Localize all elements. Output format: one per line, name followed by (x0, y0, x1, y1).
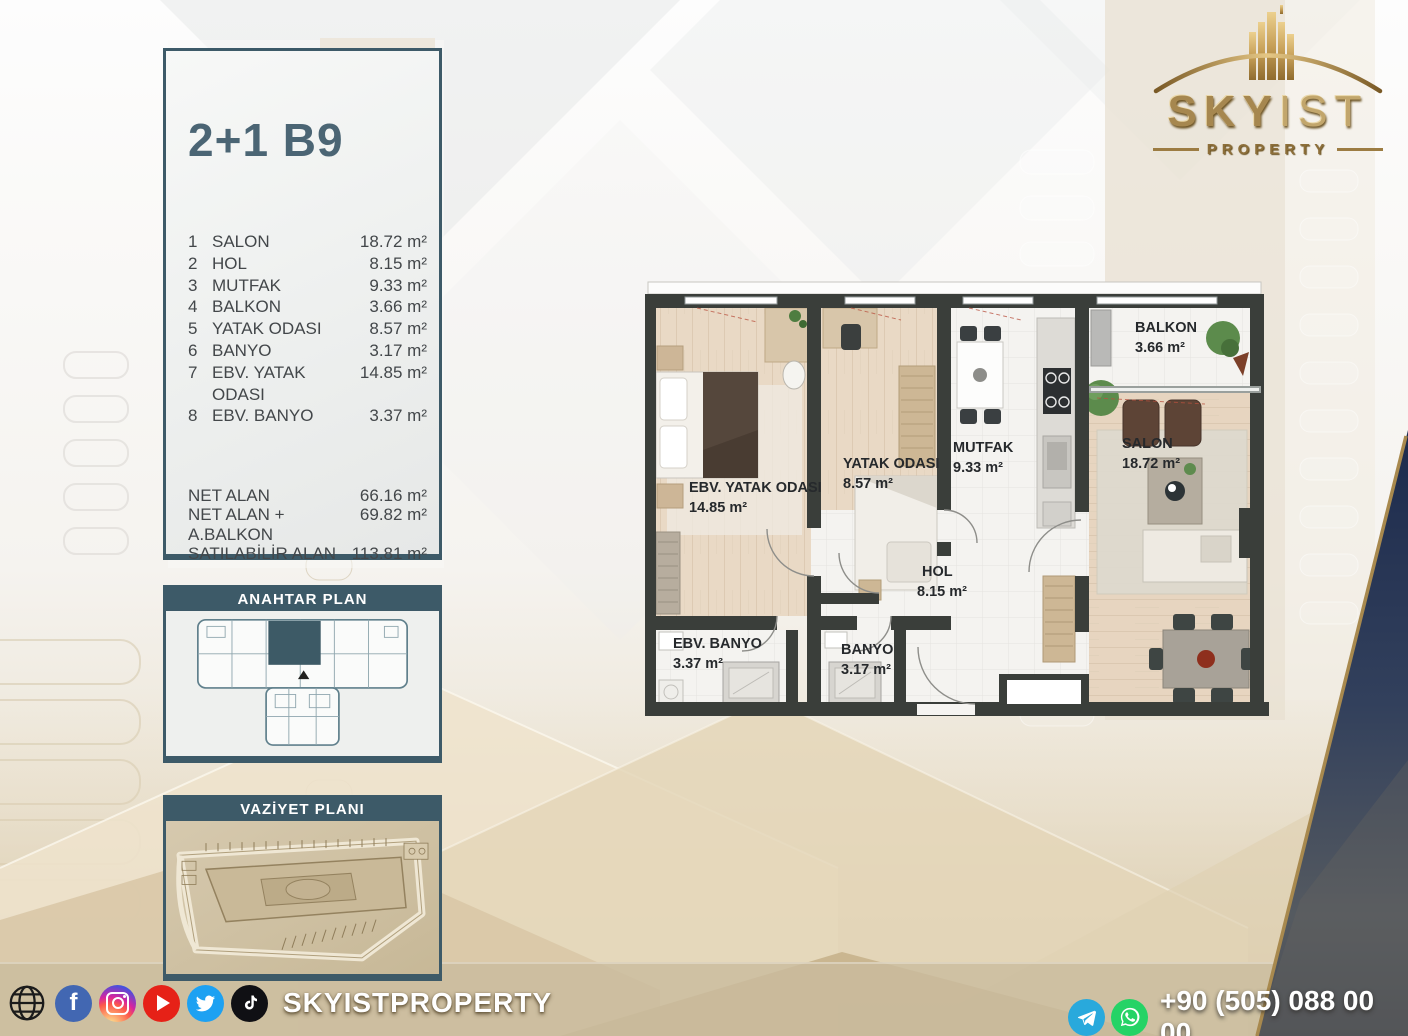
brand-bold: SKY (1168, 87, 1279, 136)
total-row: NET ALAN 66.16 m² (188, 486, 427, 505)
room-name: BALKON (212, 296, 369, 318)
room-row: 1 SALON 18.72 m² (188, 231, 427, 253)
facebook-icon[interactable]: f (55, 985, 92, 1022)
telegram-icon[interactable] (1068, 999, 1105, 1036)
room-number: 8 (188, 405, 201, 427)
room-row: 7 EBV. YATAK ODASI 14.85 m² (188, 362, 427, 406)
total-value: 66.16 m² (360, 486, 427, 505)
plan-area-salon: 18.72 m² (1122, 456, 1180, 472)
plan-label-balkon: BALKON (1135, 320, 1197, 336)
whatsapp-icon[interactable] (1111, 999, 1148, 1036)
total-name: SATILABİLİR ALAN (188, 544, 352, 563)
room-row: 6 BANYO 3.17 m² (188, 340, 427, 362)
skyline-icon (1128, 4, 1408, 94)
plan-area-ebv-banyo: 3.37 m² (673, 656, 723, 672)
total-name: NET ALAN (188, 486, 360, 505)
room-number: 1 (188, 231, 201, 253)
room-row: 8 EBV. BANYO 3.37 m² (188, 405, 427, 427)
key-plan-panel: ANAHTAR PLAN (163, 585, 442, 763)
room-row: 4 BALKON 3.66 m² (188, 296, 427, 318)
room-name: EBV. BANYO (212, 405, 369, 427)
plan-label-ebv-banyo: EBV. BANYO (673, 636, 762, 652)
plan-area-balkon: 3.66 m² (1135, 340, 1185, 356)
room-name: HOL (212, 253, 369, 275)
room-name: BANYO (212, 340, 369, 362)
right-dash (1337, 148, 1383, 152)
phone-number[interactable]: +90 (505) 088 00 00 (1160, 985, 1408, 1036)
brand-light: IST (1279, 87, 1368, 136)
room-area: 9.33 m² (369, 275, 427, 297)
tiktok-icon[interactable] (231, 985, 268, 1022)
room-name: YATAK ODASI (212, 318, 369, 340)
instagram-icon[interactable] (99, 985, 136, 1022)
room-row: 2 HOL 8.15 m² (188, 253, 427, 275)
floor-plan: EBV. YATAK ODASI 14.85 m² YATAK ODASI 8.… (645, 280, 1275, 726)
area-totals: NET ALAN 66.16 m² NET ALAN + A.BALKON 69… (188, 486, 427, 564)
plan-area-banyo: 3.17 m² (841, 662, 891, 678)
room-name: EBV. YATAK ODASI (212, 362, 360, 406)
site-plan-panel: VAZİYET PLANI (163, 795, 442, 981)
room-area: 3.17 m² (369, 340, 427, 362)
unit-info-card: 2+1 B9 1 SALON 18.72 m² 2 HOL 8.15 m² 3 … (163, 48, 442, 560)
plan-area-mutfak: 9.33 m² (953, 460, 1003, 476)
room-area: 8.57 m² (369, 318, 427, 340)
site-plan-image (166, 821, 439, 974)
footer-social-bar: f SKYISTPROPERTY (6, 982, 552, 1024)
room-name: SALON (212, 231, 360, 253)
footer-contact-bar: +90 (505) 088 00 00 (1068, 985, 1408, 1036)
total-value: 69.82 m² (360, 505, 427, 544)
room-area: 3.37 m² (369, 405, 427, 427)
key-plan-image (166, 611, 439, 756)
brand-subtitle: PROPERTY (1207, 141, 1330, 158)
brand-subtitle-row: PROPERTY (1153, 141, 1384, 158)
plan-label-banyo: BANYO (841, 642, 893, 658)
site-plan-header: VAZİYET PLANI (166, 798, 439, 821)
total-row: NET ALAN + A.BALKON 69.82 m² (188, 505, 427, 544)
room-name: MUTFAK (212, 275, 369, 297)
room-area: 3.66 m² (369, 296, 427, 318)
room-number: 4 (188, 296, 201, 318)
unit-title: 2+1 B9 (188, 113, 344, 167)
youtube-icon[interactable] (143, 985, 180, 1022)
total-value: 113.81 m² (352, 544, 427, 563)
left-dash (1153, 148, 1199, 152)
plan-label-yatak-odasi: YATAK ODASI (843, 456, 939, 472)
room-list: 1 SALON 18.72 m² 2 HOL 8.15 m² 3 MUTFAK … (188, 231, 427, 427)
room-number: 5 (188, 318, 201, 340)
room-row: 3 MUTFAK 9.33 m² (188, 275, 427, 297)
room-area: 8.15 m² (369, 253, 427, 275)
plan-area-ebv-yatak-odasi: 14.85 m² (689, 500, 747, 516)
room-number: 6 (188, 340, 201, 362)
room-row: 5 YATAK ODASI 8.57 m² (188, 318, 427, 340)
brand-name: SKYIST (1168, 90, 1369, 134)
room-number: 2 (188, 253, 201, 275)
total-name: NET ALAN + A.BALKON (188, 505, 360, 544)
room-number: 3 (188, 275, 201, 297)
brochure-page: 2+1 B9 1 SALON 18.72 m² 2 HOL 8.15 m² 3 … (0, 0, 1408, 1036)
social-handle: SKYISTPROPERTY (283, 987, 552, 1019)
room-area: 18.72 m² (360, 231, 427, 253)
key-plan-header: ANAHTAR PLAN (166, 588, 439, 611)
plan-area-yatak-odasi: 8.57 m² (843, 476, 893, 492)
total-row: SATILABİLİR ALAN 113.81 m² (188, 544, 427, 563)
room-area: 14.85 m² (360, 362, 427, 406)
room-number: 7 (188, 362, 201, 406)
plan-label-ebv-yatak-odasi: EBV. YATAK ODASI (689, 480, 822, 496)
plan-label-salon: SALON (1122, 436, 1173, 452)
plan-area-hol: 8.15 m² (917, 584, 967, 600)
plan-label-hol: HOL (922, 564, 953, 580)
brand-logo: SKYIST PROPERTY (1128, 4, 1408, 158)
globe-icon[interactable] (6, 982, 48, 1024)
plan-label-mutfak: MUTFAK (953, 440, 1014, 456)
twitter-icon[interactable] (187, 985, 224, 1022)
